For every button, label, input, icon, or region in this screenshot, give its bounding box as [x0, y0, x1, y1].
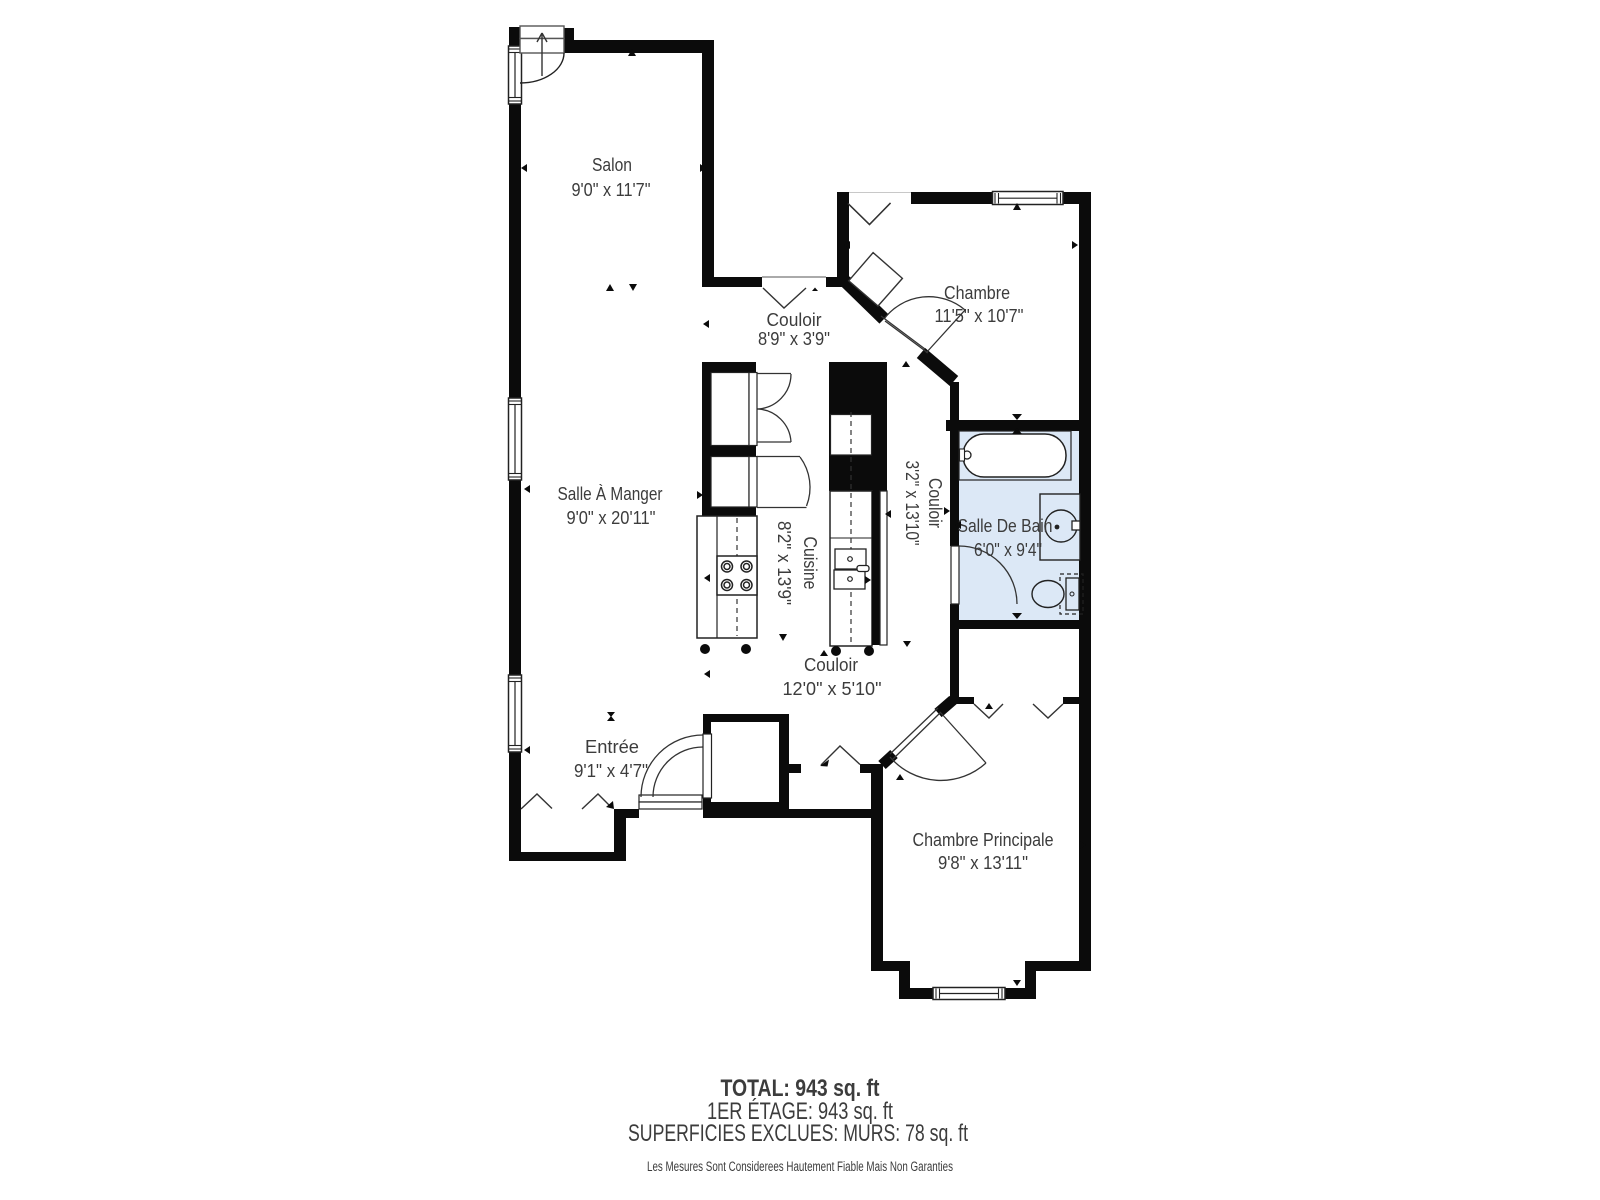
- svg-text:3'2" x 13'10": 3'2" x 13'10": [902, 461, 922, 546]
- svg-text:11'5" x 10'7": 11'5" x 10'7": [935, 306, 1024, 326]
- svg-text:8'9" x 3'9": 8'9" x 3'9": [758, 329, 830, 349]
- svg-text:Salle À Manger: Salle À Manger: [558, 484, 663, 504]
- svg-text:9'0" x 20'11": 9'0" x 20'11": [567, 508, 656, 528]
- svg-text:Entrée: Entrée: [585, 737, 639, 757]
- svg-text:12'0" x 5'10": 12'0" x 5'10": [783, 679, 882, 699]
- svg-text:9'1" x 4'7": 9'1" x 4'7": [574, 761, 648, 781]
- svg-text:SUPERFICIES EXCLUES: MURS: 78: SUPERFICIES EXCLUES: MURS: 78 sq. ft: [628, 1120, 968, 1147]
- svg-text:Cuisine: Cuisine: [800, 537, 820, 590]
- svg-text:9'8" x 13'11": 9'8" x 13'11": [938, 853, 1028, 873]
- svg-text:6'0" x 9'4": 6'0" x 9'4": [974, 540, 1042, 560]
- svg-text:Chambre: Chambre: [944, 283, 1010, 303]
- svg-text:Salle De Bain: Salle De Bain: [958, 516, 1053, 536]
- svg-text:Couloir: Couloir: [804, 655, 858, 675]
- svg-text:Chambre Principale: Chambre Principale: [913, 830, 1054, 850]
- svg-text:Couloir: Couloir: [767, 310, 822, 330]
- svg-text:Couloir: Couloir: [925, 478, 945, 528]
- svg-text:Les Mesures Sont Considerees H: Les Mesures Sont Considerees Hautement F…: [647, 1159, 953, 1174]
- svg-text:8'2" x 13'9": 8'2" x 13'9": [774, 521, 794, 605]
- svg-text:Salon: Salon: [592, 155, 632, 175]
- svg-text:9'0" x 11'7": 9'0" x 11'7": [572, 180, 651, 200]
